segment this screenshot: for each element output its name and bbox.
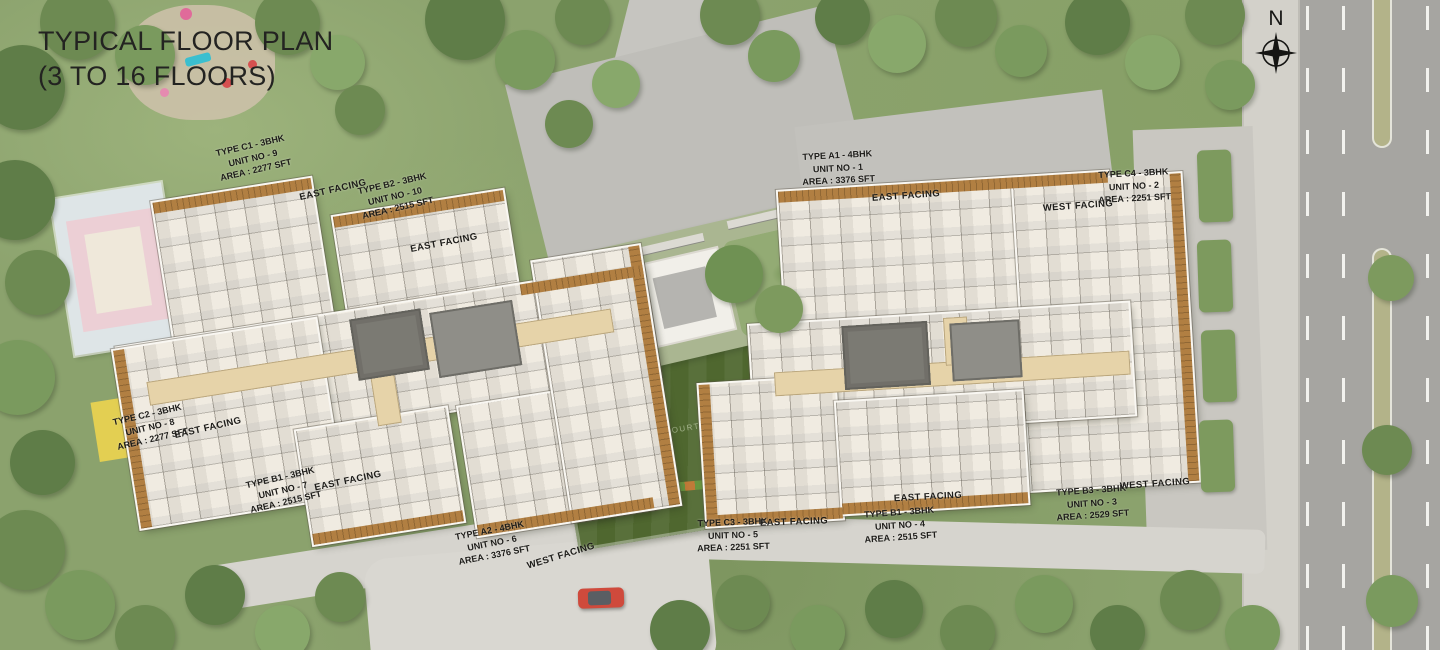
tree — [0, 510, 65, 590]
unit-label-b3: TYPE B3 - 3BHK UNIT NO - 3 AREA : 2529 S… — [1054, 482, 1129, 525]
tree — [0, 160, 55, 240]
tree — [45, 570, 115, 640]
road-median — [1372, 0, 1392, 148]
street-tree — [1368, 255, 1414, 301]
tree — [868, 15, 926, 73]
tree — [425, 0, 505, 60]
hedge — [1197, 239, 1233, 312]
hedge — [1199, 419, 1235, 492]
tree — [255, 605, 310, 650]
tree — [335, 85, 385, 135]
unit-area: AREA : 2251 SFT — [697, 540, 770, 555]
street-tree — [1366, 575, 1418, 627]
stair-lift-core — [349, 308, 430, 380]
tree — [495, 30, 555, 90]
tree — [940, 605, 995, 650]
tree — [748, 30, 800, 82]
site-plan: COURTYARD — [0, 0, 1440, 650]
lane-marking — [1342, 0, 1345, 650]
lane-marking — [1426, 0, 1429, 650]
tree — [592, 60, 640, 108]
lane-marking — [1306, 0, 1309, 650]
tree — [1015, 575, 1073, 633]
unit-label-a1: TYPE A1 - 4BHK UNIT NO - 1 AREA : 3376 S… — [801, 147, 876, 189]
tree — [545, 100, 593, 148]
stair-lift-core — [429, 300, 522, 378]
unit-type: TYPE C3 - 3BHK — [696, 515, 769, 530]
tree — [315, 572, 365, 622]
tree — [790, 605, 845, 650]
compass-icon — [1254, 31, 1298, 75]
tree — [1185, 0, 1245, 45]
wing-unit-5 — [699, 377, 843, 527]
north-indicator: N — [1243, 8, 1309, 75]
tree — [115, 605, 175, 650]
tree — [5, 250, 70, 315]
street-tree — [1362, 425, 1412, 475]
car-windshield — [588, 591, 611, 606]
play-equipment — [180, 8, 192, 20]
tree — [555, 0, 610, 45]
stair-lift-core — [949, 319, 1022, 381]
car — [578, 587, 625, 609]
tree — [865, 580, 923, 638]
north-label: N — [1243, 8, 1309, 29]
page-title: TYPICAL FLOOR PLAN (3 TO 16 FLOORS) — [38, 24, 333, 94]
tree — [1090, 605, 1145, 650]
tree — [1160, 570, 1220, 630]
tree — [995, 25, 1047, 77]
tree — [0, 340, 55, 415]
tree — [715, 575, 770, 630]
stair-lift-core — [841, 321, 931, 390]
unit-label-b1-4: TYPE B1 - 3BHK UNIT NO - 4 AREA : 2515 S… — [862, 504, 937, 547]
tree — [1125, 35, 1180, 90]
hedge — [1201, 329, 1237, 402]
tree — [10, 430, 75, 495]
title-line-2: (3 TO 16 FLOORS) — [38, 59, 333, 94]
title-line-1: TYPICAL FLOOR PLAN — [38, 24, 333, 59]
unit-label-c1: TYPE C1 - 3BHK UNIT NO - 9 AREA : 2277 S… — [213, 131, 292, 184]
tree — [935, 0, 997, 47]
tree — [185, 565, 245, 625]
palm-tree — [705, 245, 763, 303]
palm-tree — [755, 285, 803, 333]
tree — [1065, 0, 1130, 55]
hedge — [1197, 149, 1233, 222]
main-road — [1300, 0, 1440, 650]
